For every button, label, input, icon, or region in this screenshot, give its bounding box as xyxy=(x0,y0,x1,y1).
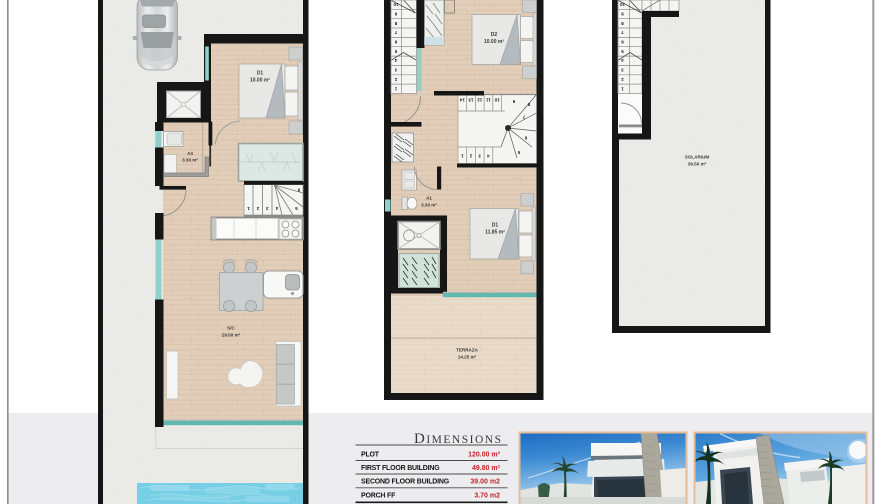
svg-text:A3: A3 xyxy=(187,151,193,156)
svg-text:5: 5 xyxy=(295,206,298,211)
svg-text:SECOND FLOOR BUILDING: SECOND FLOOR BUILDING xyxy=(361,479,450,486)
svg-text:11: 11 xyxy=(486,97,491,102)
svg-text:FIRST FLOOR BUILDING: FIRST FLOOR BUILDING xyxy=(361,465,440,472)
svg-text:10: 10 xyxy=(620,2,626,7)
svg-text:4: 4 xyxy=(275,206,278,211)
svg-text:D2: D2 xyxy=(491,32,498,38)
svg-text:10.00 m²: 10.00 m² xyxy=(484,39,504,45)
svg-text:14: 14 xyxy=(459,97,465,102)
svg-text:3.30 m²: 3.30 m² xyxy=(421,203,437,208)
svg-text:49.80 m²: 49.80 m² xyxy=(472,465,501,472)
svg-text:13: 13 xyxy=(468,97,474,102)
svg-text:10.00 m²: 10.00 m² xyxy=(250,78,270,84)
svg-text:12: 12 xyxy=(477,97,483,102)
svg-text:29.50 m²: 29.50 m² xyxy=(222,333,241,338)
svg-text:120.00 m³: 120.00 m³ xyxy=(468,452,501,459)
svg-text:PORCH FF: PORCH FF xyxy=(361,493,396,500)
svg-text:TERRAZA: TERRAZA xyxy=(456,348,479,353)
svg-text:39.50 m²: 39.50 m² xyxy=(688,162,707,167)
svg-text:3: 3 xyxy=(266,206,269,211)
svg-text:2: 2 xyxy=(256,206,259,211)
svg-text:3.30 m²: 3.30 m² xyxy=(182,158,198,163)
svg-text:SOLARIUM: SOLARIUM xyxy=(685,155,710,160)
svg-text:9: 9 xyxy=(297,188,300,193)
svg-text:10: 10 xyxy=(393,2,399,7)
svg-text:PLOT: PLOT xyxy=(361,452,380,459)
svg-text:A1: A1 xyxy=(426,196,432,201)
svg-text:39.00 m2: 39.00 m2 xyxy=(470,479,500,486)
svg-text:S/C: S/C xyxy=(227,326,235,331)
svg-text:3.70 m2: 3.70 m2 xyxy=(474,493,500,500)
svg-text:11.85 m²: 11.85 m² xyxy=(485,230,505,236)
svg-text:10: 10 xyxy=(494,97,500,102)
svg-text:D1: D1 xyxy=(257,71,264,77)
svg-text:1: 1 xyxy=(247,206,250,211)
svg-text:14.25 m²: 14.25 m² xyxy=(458,355,477,360)
svg-text:D1: D1 xyxy=(492,223,499,229)
